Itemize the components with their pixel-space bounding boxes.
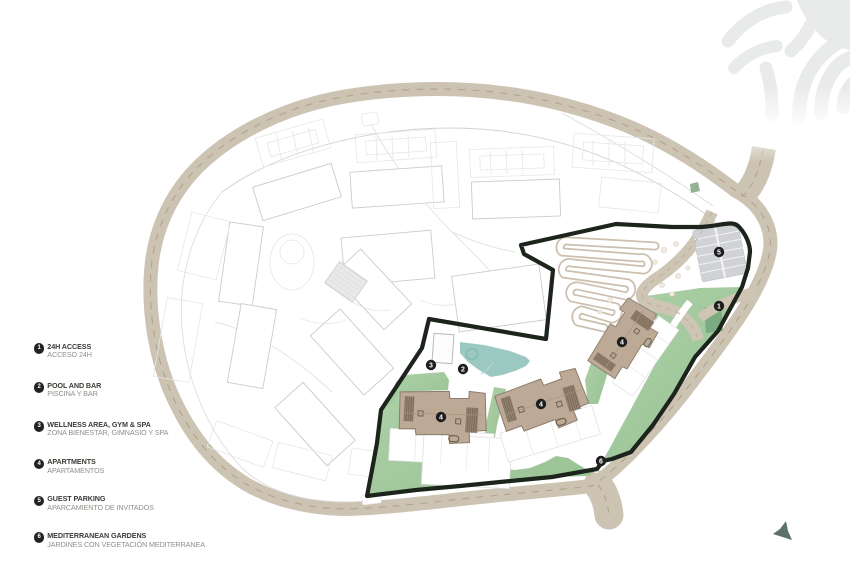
svg-text:2: 2 (461, 367, 465, 374)
svg-text:4: 4 (439, 415, 443, 422)
svg-text:4: 4 (620, 340, 624, 347)
svg-text:5: 5 (717, 250, 721, 257)
svg-text:1: 1 (717, 304, 721, 311)
svg-text:3: 3 (429, 363, 433, 370)
svg-text:4: 4 (539, 402, 543, 409)
svg-text:6: 6 (599, 459, 603, 466)
